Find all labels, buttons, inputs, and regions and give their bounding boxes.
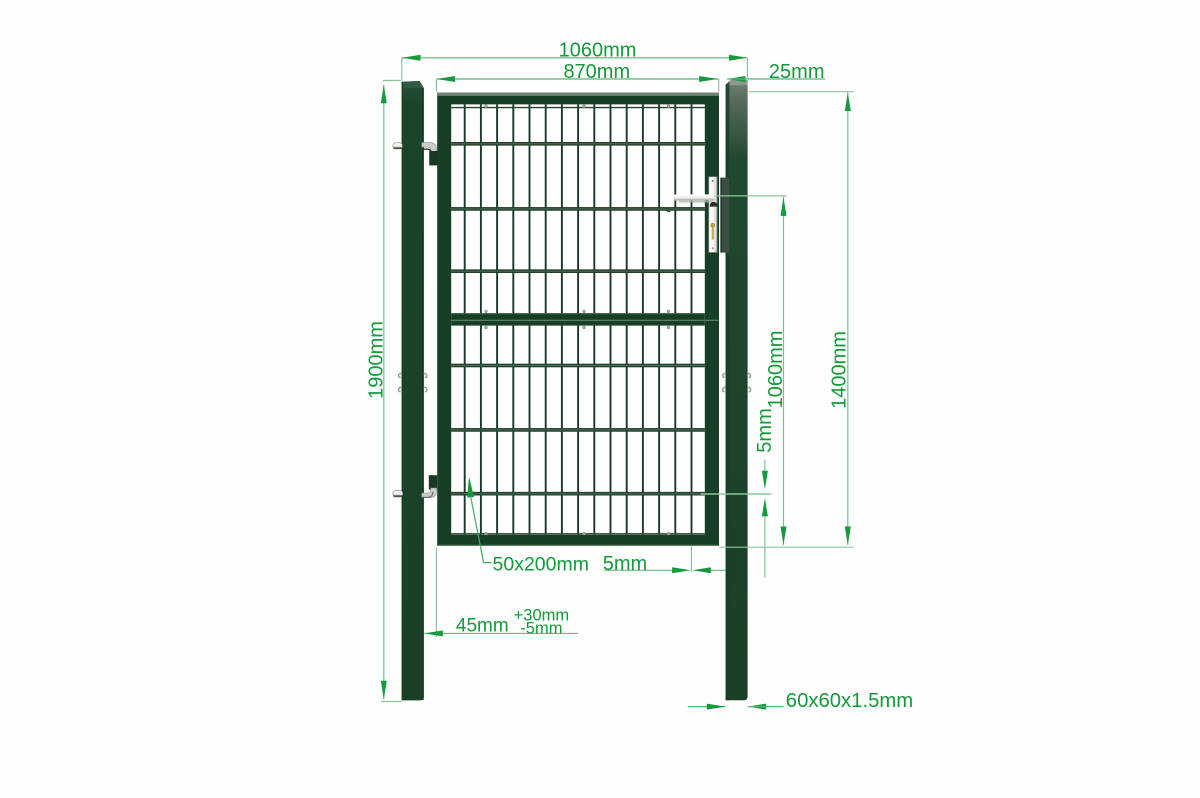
svg-text:1400mm: 1400mm bbox=[828, 331, 850, 409]
svg-text:5mm: 5mm bbox=[603, 553, 647, 575]
svg-text:45mm: 45mm bbox=[456, 615, 509, 636]
svg-text:1060mm: 1060mm bbox=[559, 40, 637, 62]
svg-text:25mm: 25mm bbox=[769, 61, 825, 83]
svg-text:1900mm: 1900mm bbox=[365, 321, 387, 399]
svg-text:50x200mm: 50x200mm bbox=[493, 553, 589, 575]
svg-text:5mm: 5mm bbox=[754, 408, 776, 452]
svg-text:60x60x1.5mm: 60x60x1.5mm bbox=[786, 690, 913, 712]
svg-text:1060mm: 1060mm bbox=[765, 331, 787, 409]
svg-text:870mm: 870mm bbox=[563, 61, 630, 83]
svg-text:-5mm: -5mm bbox=[520, 620, 562, 638]
